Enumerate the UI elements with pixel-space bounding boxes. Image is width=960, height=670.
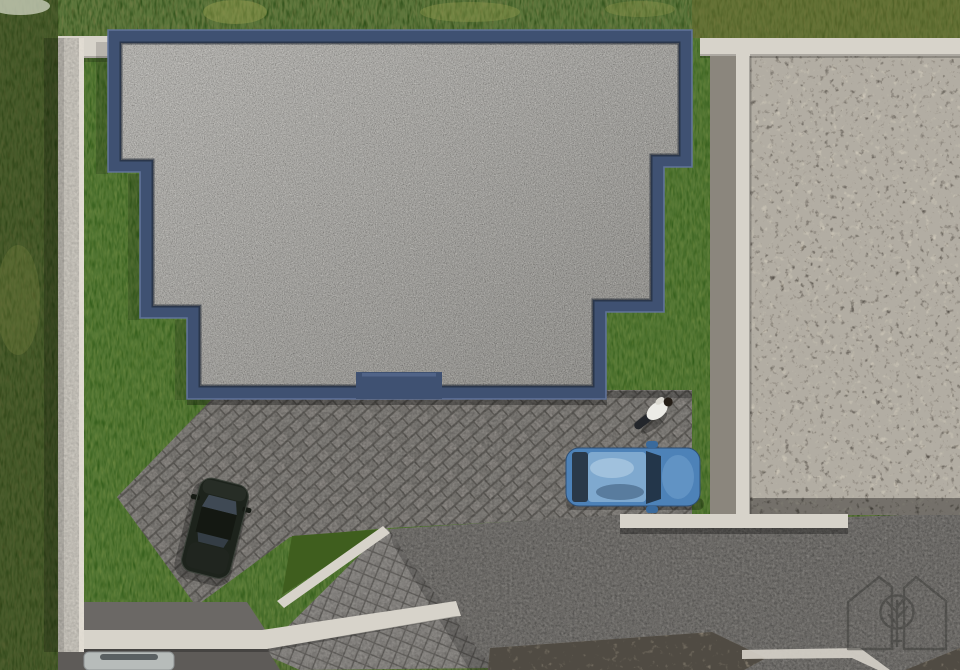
t-wall-cap bbox=[620, 514, 848, 528]
bush-top-2 bbox=[420, 2, 520, 22]
building-west-shadow-1 bbox=[96, 42, 108, 174]
blue-car-rear-window bbox=[572, 452, 588, 502]
scene-canvas: Aerial top-down 3D architectural render … bbox=[0, 0, 960, 670]
parapet-notch-highlight bbox=[362, 373, 436, 377]
right-wall-face bbox=[710, 56, 737, 516]
silver-car: silver car partially visible at bottom e… bbox=[84, 652, 174, 670]
building-west-shadow-3 bbox=[175, 320, 188, 400]
right-wall-edge bbox=[749, 56, 752, 514]
building-west-shadow-2 bbox=[128, 174, 140, 320]
asphalt-strip bbox=[84, 602, 266, 631]
blue-car-hood-highlight bbox=[662, 455, 694, 499]
left-wall-outer-shadow bbox=[44, 38, 58, 652]
neighbor-gravel-light bbox=[748, 55, 960, 515]
blue-car-roof-shade bbox=[596, 484, 644, 500]
blue-car-mirror-bottom bbox=[646, 506, 658, 513]
neighbor-yard: neighboring plot covered in coarse grave… bbox=[748, 55, 960, 515]
blue-car: blue car parked along the wall bbox=[566, 441, 704, 513]
left-wall-shade bbox=[58, 38, 64, 652]
aerial-render: Aerial top-down 3D architectural render … bbox=[0, 0, 960, 670]
neighbor-gravel-edge-shadow bbox=[748, 498, 960, 515]
left-wall-highlight bbox=[79, 38, 84, 652]
right-wall-cap bbox=[736, 48, 750, 518]
bush-top-3 bbox=[605, 1, 675, 17]
wild-grass-olive-tint bbox=[692, 0, 960, 40]
blue-car-roof-reflection bbox=[590, 458, 634, 478]
building: flat gravel roof with navy parapet bbox=[96, 30, 692, 400]
bush-top-1 bbox=[203, 0, 267, 24]
blue-car-mirror-top bbox=[646, 441, 658, 448]
building-se-shadow bbox=[606, 391, 692, 398]
blue-car-windshield bbox=[646, 451, 661, 504]
silver-car-window bbox=[100, 654, 158, 660]
t-wall-shadow bbox=[620, 528, 848, 534]
